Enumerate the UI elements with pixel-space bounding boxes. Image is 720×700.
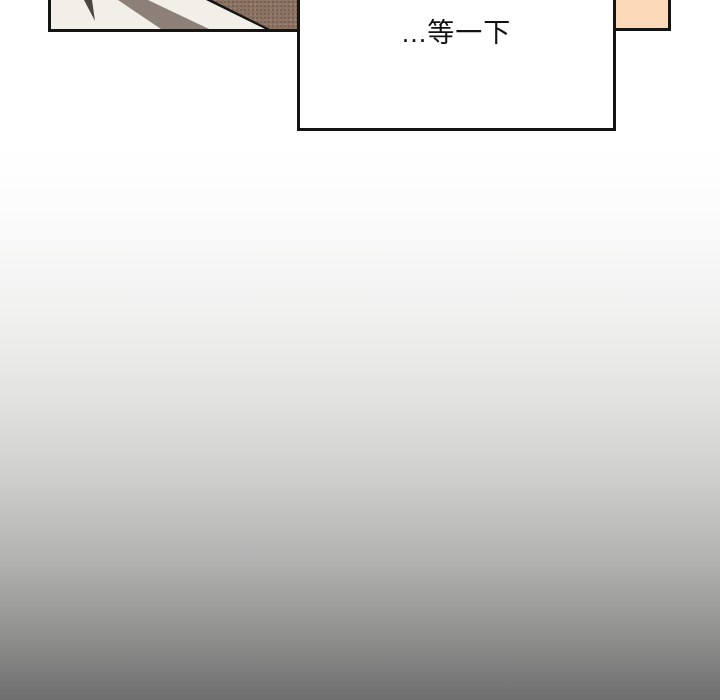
speech-text: ...等一下 [402,20,512,47]
speech-caption-box: ...等一下 [297,0,616,131]
comic-panel-left [48,0,297,32]
comic-page: ...等一下 [0,0,720,700]
panel-artwork [51,0,297,29]
skin-corner-panel [613,0,671,31]
